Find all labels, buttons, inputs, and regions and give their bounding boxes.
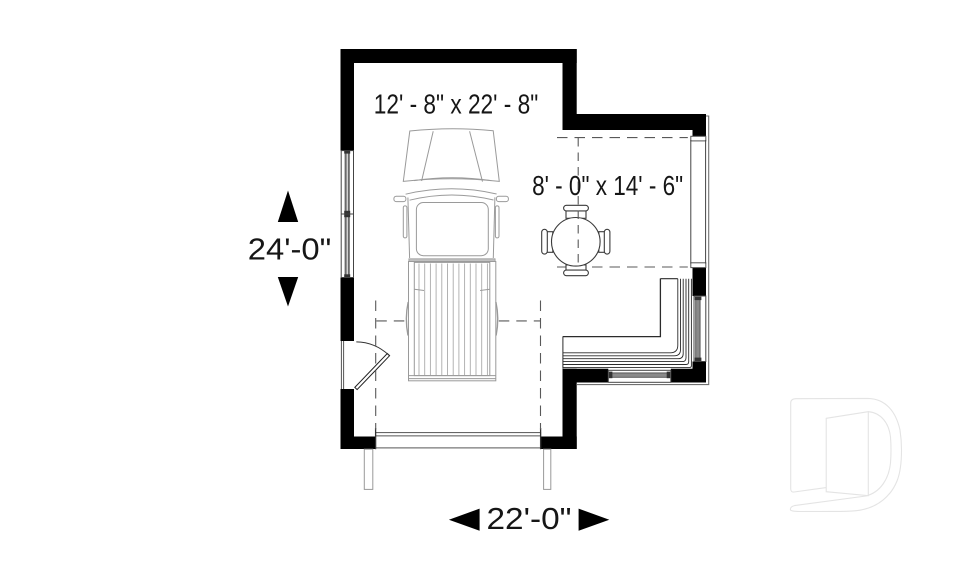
svg-text:24'-0": 24'-0": [248, 232, 332, 267]
svg-text:22'-0": 22'-0": [487, 502, 572, 536]
svg-text:8' - 0" x 14' - 6": 8' - 0" x 14' - 6": [532, 170, 683, 201]
svg-text:12' - 8" x 22' - 8": 12' - 8" x 22' - 8": [374, 88, 539, 119]
